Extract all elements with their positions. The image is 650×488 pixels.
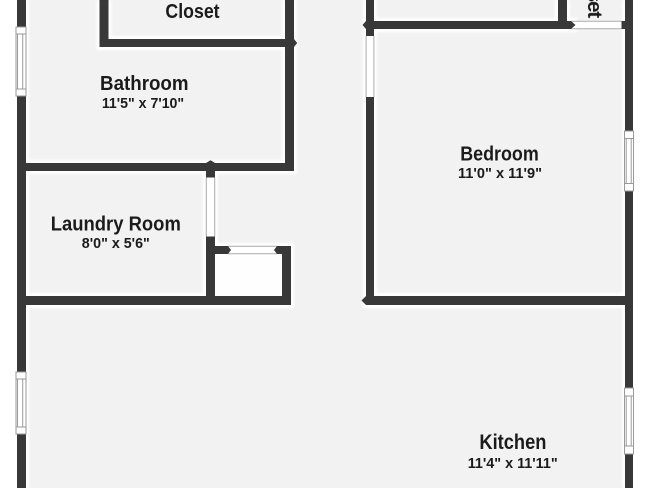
svg-text:11'0" x 11'9": 11'0" x 11'9": [458, 166, 542, 182]
svg-text:11'5" x 7'10": 11'5" x 7'10": [102, 96, 184, 112]
svg-text:11'4" x 11'11": 11'4" x 11'11": [468, 456, 558, 472]
svg-text:Kitchen: Kitchen: [479, 431, 546, 454]
svg-text:Closet: Closet: [165, 0, 219, 23]
svg-text:8'0" x 5'6": 8'0" x 5'6": [82, 236, 150, 252]
svg-text:Bathroom: Bathroom: [100, 72, 189, 95]
svg-text:Laundry Room: Laundry Room: [51, 213, 181, 236]
svg-text:Closet: Closet: [583, 0, 606, 18]
svg-text:Bedroom: Bedroom: [460, 142, 539, 165]
